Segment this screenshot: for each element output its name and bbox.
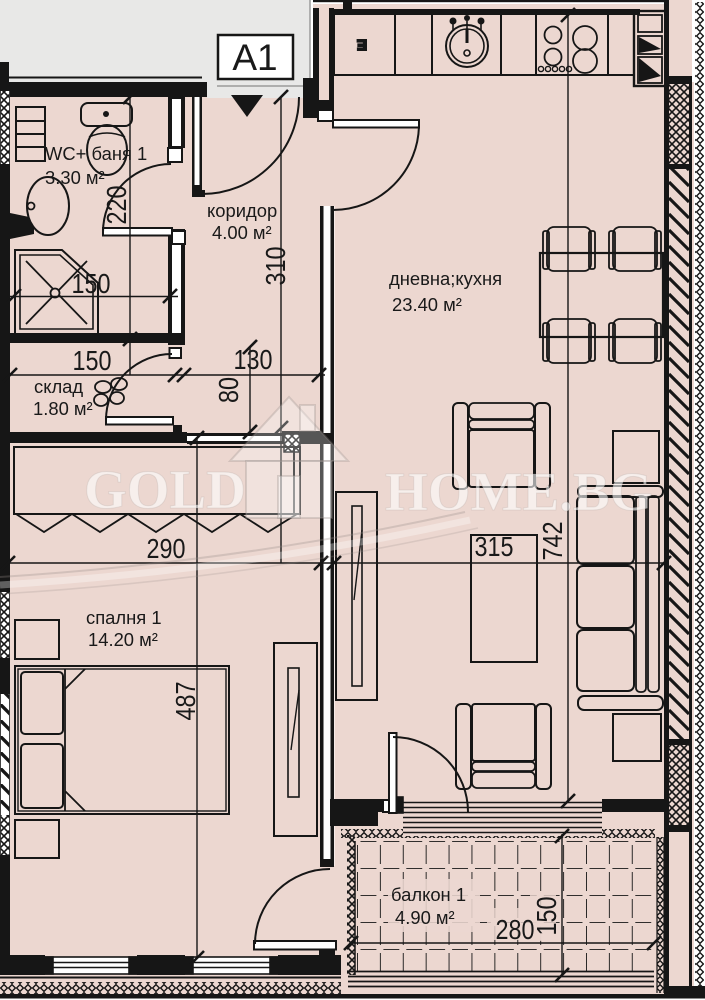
svg-text:150: 150 [72, 268, 111, 299]
svg-text:280: 280 [496, 914, 535, 945]
svg-text:315: 315 [475, 531, 514, 562]
svg-text:спалня 1: спалня 1 [86, 607, 162, 628]
svg-text:23.40 м²: 23.40 м² [392, 294, 462, 315]
svg-text:487: 487 [170, 682, 201, 721]
svg-text:WC+ баня 1: WC+ баня 1 [45, 143, 147, 164]
svg-text:150: 150 [531, 897, 562, 936]
svg-text:220: 220 [101, 186, 132, 225]
svg-text:коридор: коридор [207, 200, 277, 221]
svg-text:HOME.BG: HOME.BG [385, 461, 652, 522]
svg-text:GOLD: GOLD [84, 459, 246, 520]
svg-text:742: 742 [537, 522, 568, 561]
svg-text:E: E [357, 36, 367, 53]
svg-text:A1: A1 [232, 37, 277, 78]
svg-text:290: 290 [147, 533, 186, 564]
svg-text:4.90 м²: 4.90 м² [395, 907, 455, 928]
svg-text:3.30 м²: 3.30 м² [45, 167, 105, 188]
svg-text:дневна;кухня: дневна;кухня [389, 268, 502, 289]
svg-text:склад: склад [34, 376, 83, 397]
svg-text:4.00 м²: 4.00 м² [212, 222, 272, 243]
svg-text:150: 150 [73, 345, 112, 376]
svg-text:130: 130 [234, 344, 273, 375]
svg-text:14.20 м²: 14.20 м² [88, 629, 158, 650]
svg-text:1.80 м²: 1.80 м² [33, 398, 93, 419]
svg-text:балкон 1: балкон 1 [391, 884, 466, 905]
svg-text:80: 80 [213, 377, 244, 403]
svg-text:310: 310 [260, 247, 291, 286]
